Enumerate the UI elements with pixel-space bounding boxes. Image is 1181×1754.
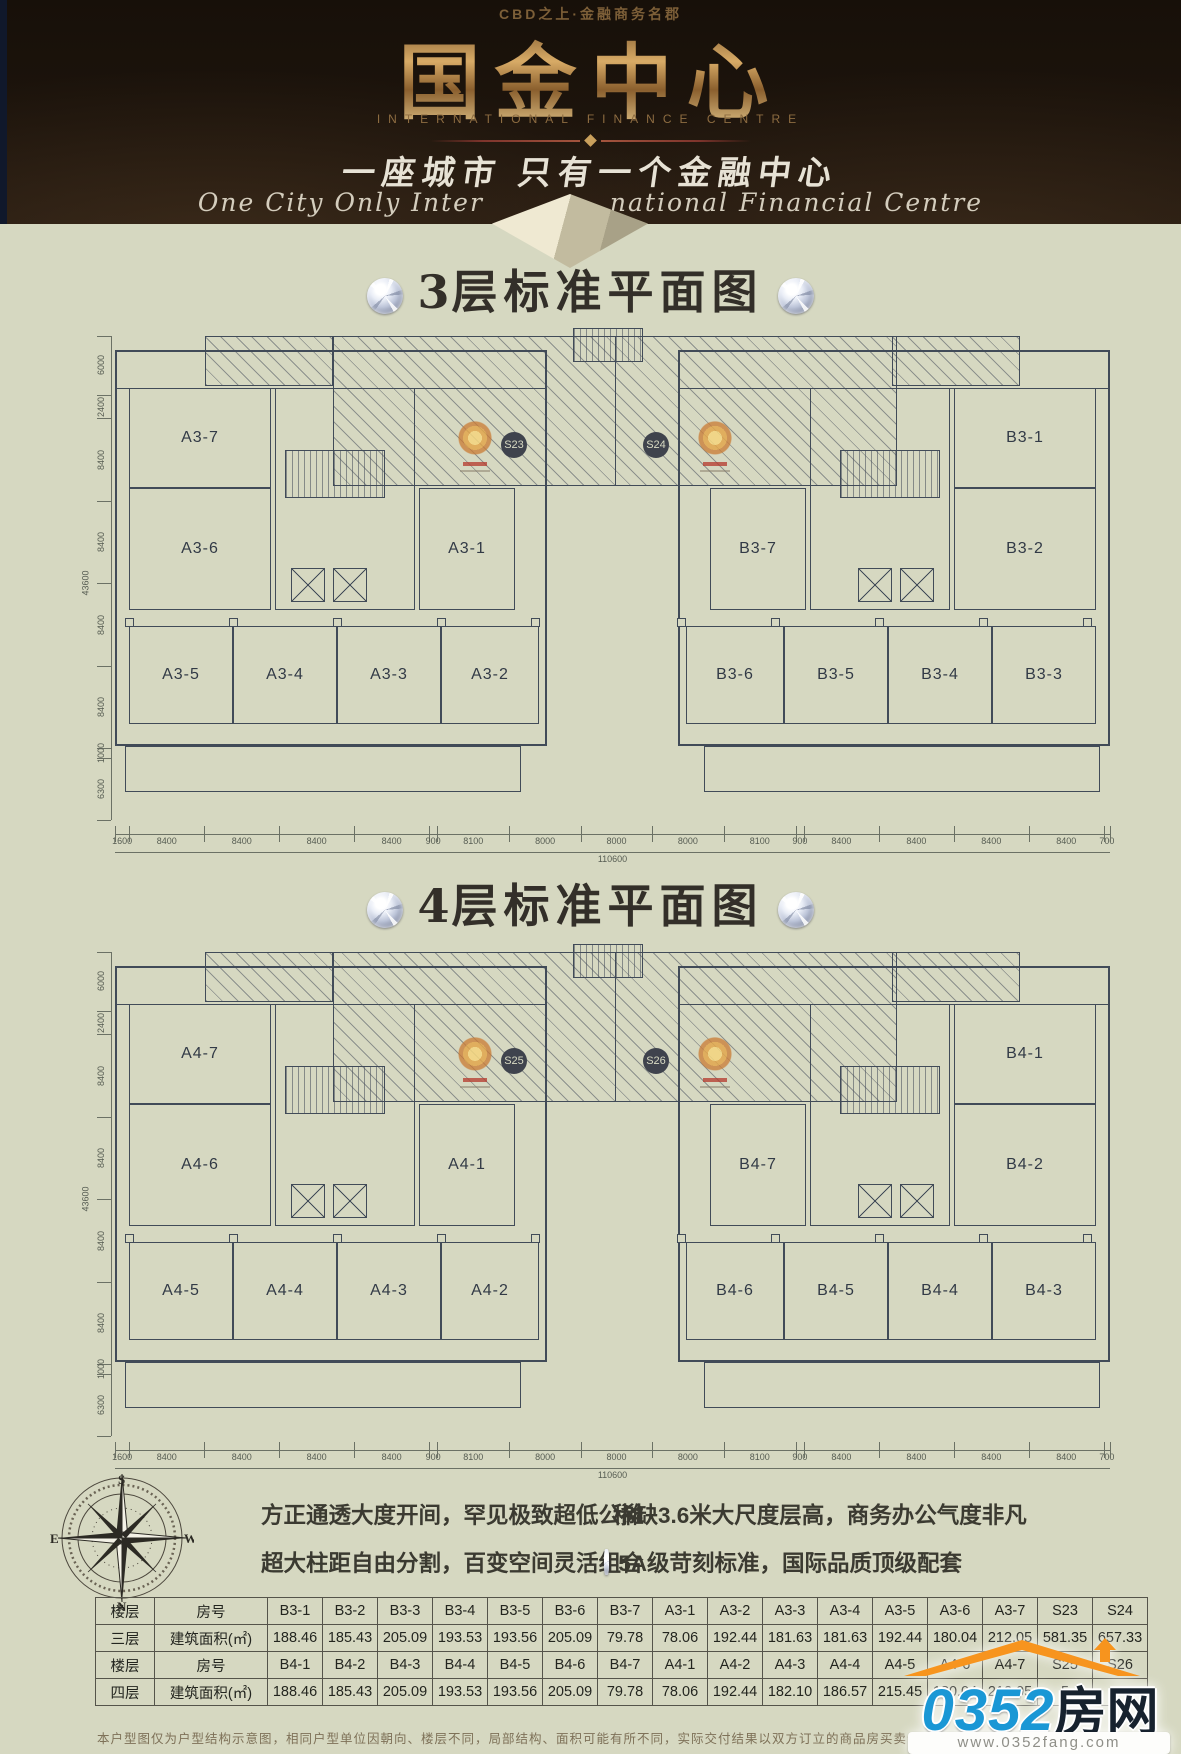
page-header: CBD之上·金融商务名郡 国金中心 INTERNATIONAL FINANCE … (0, 0, 1181, 224)
lower-terrace-strip (125, 746, 521, 792)
dimension-label: 8000 (678, 1452, 698, 1462)
ruler-tick (509, 826, 510, 842)
dimension-label: 8400 (831, 1452, 851, 1462)
table-cell: 房号 (155, 1652, 268, 1679)
project-logo-english: INTERNATIONAL FINANCE CENTRE (0, 112, 1181, 126)
bottom-dimension-ruler: 1600840084008400840090081008000800080008… (115, 1442, 1110, 1482)
shop-circle-label: S26 (643, 1048, 669, 1074)
dimension-label: 8400 (96, 532, 106, 552)
ruler-tick (204, 1442, 205, 1458)
dimension-label: 2400 (96, 397, 106, 417)
header-divider (0, 136, 1181, 145)
ruler-tick (1110, 1442, 1111, 1458)
room-unit: B3-5 (784, 626, 888, 724)
table-cell: 192.44 (708, 1679, 763, 1706)
room-unit: A4-1 (419, 1104, 515, 1226)
dimension-label: 900 (792, 1452, 807, 1462)
ruler-tick (97, 418, 111, 419)
elevator (900, 1184, 934, 1218)
table-cell: 三层 (96, 1625, 155, 1652)
column-marker (531, 618, 540, 627)
stairwell (285, 450, 385, 498)
dimension-label: 8400 (906, 836, 926, 846)
table-cell: A4-2 (708, 1652, 763, 1679)
shop-circle-label: S23 (501, 432, 527, 458)
dimension-label: 8400 (906, 1452, 926, 1462)
ruler-line (115, 1450, 1110, 1451)
ruler-tick (97, 395, 111, 396)
column-marker (437, 618, 446, 627)
column-marker (979, 1234, 988, 1243)
ruler-tick (509, 1442, 510, 1458)
dimension-label: 8000 (607, 836, 627, 846)
feature-text: 5A级苛刻标准，国际品质顶级配套 (618, 1546, 962, 1578)
column-marker (875, 1234, 884, 1243)
ruler-tick (804, 1442, 805, 1458)
table-cell: B3-1 (268, 1598, 323, 1625)
dimension-label: 8400 (382, 1452, 402, 1462)
left-dimension-ruler: 6000240084008400840084001000630043600 (85, 336, 113, 820)
table-cell: 182.10 (763, 1679, 818, 1706)
column-marker (125, 618, 134, 627)
room-unit: A3-6 (129, 488, 271, 610)
column-marker (437, 1234, 446, 1243)
table-cell: A3-6 (928, 1598, 983, 1625)
ruler-tick (97, 820, 111, 821)
column-marker (771, 1234, 780, 1243)
column-marker (875, 618, 884, 627)
table-cell: 205.09 (378, 1625, 433, 1652)
ruler-tick (354, 1442, 355, 1458)
table-cell: B4-6 (543, 1652, 598, 1679)
table-cell: B3-2 (323, 1598, 378, 1625)
dimension-label: 8400 (96, 1148, 106, 1168)
table-cell: A4-1 (653, 1652, 708, 1679)
ruler-line (115, 834, 1110, 835)
room-unit: A3-1 (419, 488, 515, 610)
dimension-label: 8400 (232, 1452, 252, 1462)
diamond-icon (584, 134, 597, 147)
table-cell: A3-2 (708, 1598, 763, 1625)
floor4-title: 4层标准平面图 (0, 870, 1181, 936)
table-cell: 楼层 (96, 1652, 155, 1679)
ruler-tick (354, 826, 355, 842)
dimension-label: 8400 (307, 836, 327, 846)
ruler-line (115, 852, 1110, 853)
table-cell: 建筑面积(㎡) (155, 1625, 268, 1652)
table-cell: B4-1 (268, 1652, 323, 1679)
gem-icon (367, 278, 403, 314)
slogan-chinese: 一座城市 只有一个金融中心 (0, 146, 1181, 194)
table-cell: A3-5 (873, 1598, 928, 1625)
room-unit: B4-1 (954, 1004, 1096, 1104)
dimension-label: 6000 (96, 971, 106, 991)
elevator (291, 568, 325, 602)
column-marker (979, 618, 988, 627)
ruler-tick (97, 1374, 111, 1375)
table-cell: B4-5 (488, 1652, 543, 1679)
ruler-tick (97, 336, 111, 337)
room-unit: A3-2 (441, 626, 539, 724)
ruler-tick (97, 1117, 111, 1118)
dimension-label: 8000 (678, 836, 698, 846)
dimension-label: 8400 (96, 615, 106, 635)
divider-line (430, 140, 580, 142)
table-cell: 房号 (155, 1598, 268, 1625)
lower-terrace-strip (125, 1362, 521, 1408)
floor3-title-text: 层标准平面图 (452, 265, 764, 319)
ruler-tick (129, 1442, 130, 1458)
ruler-tick (437, 1442, 438, 1458)
ruler-tick (204, 826, 205, 842)
ruler-tick (724, 1442, 725, 1458)
dimension-label: 8400 (1056, 836, 1076, 846)
dimension-label: 900 (426, 836, 441, 846)
feature-list: 方正通透大度开间，罕见极致超低公摊 稀缺3.6米大尺度层高，商务办公气度非凡 超… (252, 1498, 962, 1578)
ruler-tick (97, 1011, 111, 1012)
shop-circle-label: S25 (501, 1048, 527, 1074)
dimension-label: 8100 (463, 1452, 483, 1462)
ruler-tick (97, 1199, 111, 1200)
stair-box (573, 328, 643, 362)
table-cell: 193.56 (488, 1679, 543, 1706)
crest-stamp-icon (453, 1036, 497, 1092)
feature-text: 稀缺3.6米大尺度层高，商务办公气度非凡 (613, 1498, 1027, 1530)
ruler-line (111, 336, 112, 820)
dimension-total-label: 43600 (81, 1186, 91, 1211)
ruler-tick (97, 501, 111, 502)
floor3-title: 3层标准平面图 (0, 256, 1181, 322)
column-marker (229, 1234, 238, 1243)
feature-text: 方正通透大度开间，罕见极致超低公摊 (261, 1498, 644, 1530)
column-marker (333, 618, 342, 627)
table-row: 楼层房号B3-1B3-2B3-3B3-4B3-5B3-6B3-7A3-1A3-2… (96, 1598, 1148, 1625)
column-marker (677, 1234, 686, 1243)
feature-text: 超大柱距自由分割，百变空间灵活组合 (261, 1546, 644, 1578)
table-cell: A4-3 (763, 1652, 818, 1679)
stair-box (573, 944, 643, 978)
table-cell: 192.44 (708, 1625, 763, 1652)
table-cell: A3-1 (653, 1598, 708, 1625)
ruler-tick (437, 826, 438, 842)
ruler-tick (652, 1442, 653, 1458)
table-cell: B3-4 (433, 1598, 488, 1625)
dimension-label: 8400 (96, 450, 106, 470)
room-unit: A4-2 (441, 1242, 539, 1340)
elevator (858, 568, 892, 602)
dimension-label: 700 (1099, 1452, 1114, 1462)
ruler-tick (97, 583, 111, 584)
dimension-total-label: 43600 (81, 570, 91, 595)
dimension-label: 900 (792, 836, 807, 846)
dimension-label: 8400 (1056, 1452, 1076, 1462)
ruler-tick (97, 758, 111, 759)
room-unit: A4-5 (129, 1242, 233, 1340)
crest-stamp-icon (693, 1036, 737, 1092)
table-cell: B3-3 (378, 1598, 433, 1625)
dimension-label: 8400 (96, 1066, 106, 1086)
dimension-total-label: 110600 (115, 854, 1110, 864)
elevator (333, 568, 367, 602)
dimension-label: 8000 (535, 836, 555, 846)
column-marker (1083, 618, 1092, 627)
floor-plan-level-3: A3-7A3-6A3-1A3-5A3-4A3-3A3-2B3-1B3-2B3-7… (85, 328, 1140, 876)
stairwell (840, 1066, 940, 1114)
room-unit: A3-5 (129, 626, 233, 724)
dimension-label: 8100 (750, 1452, 770, 1462)
room-unit: B3-2 (954, 488, 1096, 610)
table-cell: 四层 (96, 1679, 155, 1706)
gem-icon (778, 892, 814, 928)
dimension-label: 900 (426, 1452, 441, 1462)
feature-item: 超大柱距自由分割，百变空间灵活组合 (252, 1546, 604, 1578)
table-cell: A3-7 (983, 1598, 1038, 1625)
dimension-label: 1000 (96, 743, 106, 763)
table-cell: 楼层 (96, 1598, 155, 1625)
table-cell: 185.43 (323, 1679, 378, 1706)
ruler-tick (581, 1442, 582, 1458)
feature-item: 稀缺3.6米大尺度层高，商务办公气度非凡 (604, 1498, 962, 1530)
room-unit: B4-5 (784, 1242, 888, 1340)
room-unit: A3-7 (129, 388, 271, 488)
dimension-total-label: 110600 (115, 1470, 1110, 1480)
crest-stamp-icon (693, 420, 737, 476)
table-cell: A4-4 (818, 1652, 873, 1679)
dimension-label: 8400 (157, 836, 177, 846)
table-cell: B3-7 (598, 1598, 653, 1625)
table-cell: 181.63 (818, 1625, 873, 1652)
table-cell: A3-3 (763, 1598, 818, 1625)
ruler-tick (97, 1034, 111, 1035)
table-cell: S23 (1038, 1598, 1093, 1625)
room-unit: A4-6 (129, 1104, 271, 1226)
table-cell: 193.53 (433, 1679, 488, 1706)
dimension-label: 8400 (96, 1231, 106, 1251)
bottom-dimension-ruler: 1600840084008400840090081008000800080008… (115, 826, 1110, 866)
elevator (291, 1184, 325, 1218)
room-unit: A3-4 (233, 626, 337, 724)
lower-terrace-strip (704, 746, 1100, 792)
feature-item: 5A级苛刻标准，国际品质顶级配套 (604, 1546, 962, 1578)
elevator (333, 1184, 367, 1218)
ruler-tick (879, 1442, 880, 1458)
ruler-tick (97, 952, 111, 953)
site-logo-url: www.0352fang.com (908, 1732, 1170, 1754)
table-cell: 78.06 (653, 1625, 708, 1652)
ruler-tick (279, 1442, 280, 1458)
room-unit: B4-4 (888, 1242, 992, 1340)
compass-east-label: E (50, 1531, 59, 1546)
scan-edge-artifact (0, 0, 7, 224)
ruler-tick (1110, 826, 1111, 842)
dimension-label: 8400 (382, 836, 402, 846)
dimension-label: 1000 (96, 1359, 106, 1379)
crest-stamp-icon (453, 420, 497, 476)
dimension-label: 6000 (96, 355, 106, 375)
table-cell: 79.78 (598, 1679, 653, 1706)
ruler-tick (1029, 1442, 1030, 1458)
elevator (858, 1184, 892, 1218)
floor4-title-text: 层标准平面图 (452, 879, 764, 933)
table-cell: S24 (1093, 1598, 1148, 1625)
ruler-tick (879, 826, 880, 842)
table-cell: 205.09 (543, 1625, 598, 1652)
gem-icon (778, 278, 814, 314)
dimension-label: 8400 (831, 836, 851, 846)
column-marker (771, 618, 780, 627)
table-cell: 186.57 (818, 1679, 873, 1706)
ruler-tick (1029, 826, 1030, 842)
feature-item: 方正通透大度开间，罕见极致超低公摊 (252, 1498, 604, 1530)
room-unit: A4-3 (337, 1242, 441, 1340)
room-unit: B3-1 (954, 388, 1096, 488)
ruler-tick (97, 1436, 111, 1437)
dimension-label: 8100 (750, 836, 770, 846)
room-unit: B4-6 (686, 1242, 784, 1340)
table-cell: 78.06 (653, 1679, 708, 1706)
column-marker (677, 618, 686, 627)
ruler-tick (129, 826, 130, 842)
ruler-tick (581, 826, 582, 842)
ruler-tick (97, 1282, 111, 1283)
room-unit: B4-2 (954, 1104, 1096, 1226)
elevator (900, 568, 934, 602)
floor-plan-level-4: A4-7A4-6A4-1A4-5A4-4A4-3A4-2B4-1B4-2B4-7… (85, 944, 1140, 1492)
site-watermark-logo: 0352房网 www.0352fang.com (898, 1636, 1181, 1744)
column-marker (333, 1234, 342, 1243)
room-unit: B4-3 (992, 1242, 1096, 1340)
ruler-tick (97, 666, 111, 667)
ruler-tick (279, 826, 280, 842)
dimension-label: 8000 (607, 1452, 627, 1462)
table-cell: 181.63 (763, 1625, 818, 1652)
slogan-english-right: national Financial Centre (610, 188, 983, 217)
room-unit: A3-3 (337, 626, 441, 724)
dimension-label: 8400 (157, 1452, 177, 1462)
column-marker (125, 1234, 134, 1243)
ruler-tick (954, 1442, 955, 1458)
room-unit: A4-4 (233, 1242, 337, 1340)
table-cell: B4-4 (433, 1652, 488, 1679)
dimension-label: 2400 (96, 1013, 106, 1033)
table-cell: B4-2 (323, 1652, 378, 1679)
dimension-label: 8400 (307, 1452, 327, 1462)
ruler-tick (724, 826, 725, 842)
table-cell: B4-3 (378, 1652, 433, 1679)
ruler-tick (804, 826, 805, 842)
gem-bullet-icon (604, 1549, 609, 1575)
table-cell: 建筑面积(㎡) (155, 1679, 268, 1706)
room-unit: A4-7 (129, 1004, 271, 1104)
dimension-label: 8000 (535, 1452, 555, 1462)
ruler-line (115, 1468, 1110, 1469)
table-cell: 79.78 (598, 1625, 653, 1652)
room-unit: B4-7 (710, 1104, 806, 1226)
floor4-number: 4 (417, 879, 451, 933)
dimension-label: 6300 (96, 1395, 106, 1415)
table-cell: 193.56 (488, 1625, 543, 1652)
table-cell: 193.53 (433, 1625, 488, 1652)
table-cell: 188.46 (268, 1625, 323, 1652)
column-marker (229, 618, 238, 627)
table-cell: 188.46 (268, 1679, 323, 1706)
dimension-label: 8400 (232, 836, 252, 846)
shop-circle-label: S24 (643, 432, 669, 458)
table-cell: B3-6 (543, 1598, 598, 1625)
column-marker (531, 1234, 540, 1243)
stairwell (285, 1066, 385, 1114)
lower-terrace-strip (704, 1362, 1100, 1408)
table-cell: 205.09 (543, 1679, 598, 1706)
table-cell: A3-4 (818, 1598, 873, 1625)
table-cell: 205.09 (378, 1679, 433, 1706)
ruler-tick (954, 826, 955, 842)
ruler-tick (652, 826, 653, 842)
room-unit: B3-6 (686, 626, 784, 724)
floor3-number: 3 (417, 265, 451, 319)
stairwell (840, 450, 940, 498)
room-unit: B3-3 (992, 626, 1096, 724)
left-dimension-ruler: 6000240084008400840084001000630043600 (85, 952, 113, 1436)
dimension-label: 8400 (981, 836, 1001, 846)
table-cell: 185.43 (323, 1625, 378, 1652)
table-cell: B3-5 (488, 1598, 543, 1625)
dimension-label: 8100 (463, 836, 483, 846)
slogan-english-left: One City Only Inter (198, 188, 484, 217)
compass-west-label: W (184, 1531, 194, 1546)
gem-icon (367, 892, 403, 928)
room-unit: B3-4 (888, 626, 992, 724)
dimension-label: 8400 (96, 1313, 106, 1333)
room-unit: B3-7 (710, 488, 806, 610)
table-cell: B4-7 (598, 1652, 653, 1679)
dimension-label: 6300 (96, 779, 106, 799)
dimension-label: 8400 (96, 697, 106, 717)
compass-rose: S N E W (50, 1472, 194, 1612)
divider-line (601, 140, 751, 142)
dimension-label: 8400 (981, 1452, 1001, 1462)
dimension-label: 700 (1099, 836, 1114, 846)
column-marker (1083, 1234, 1092, 1243)
ruler-line (111, 952, 112, 1436)
